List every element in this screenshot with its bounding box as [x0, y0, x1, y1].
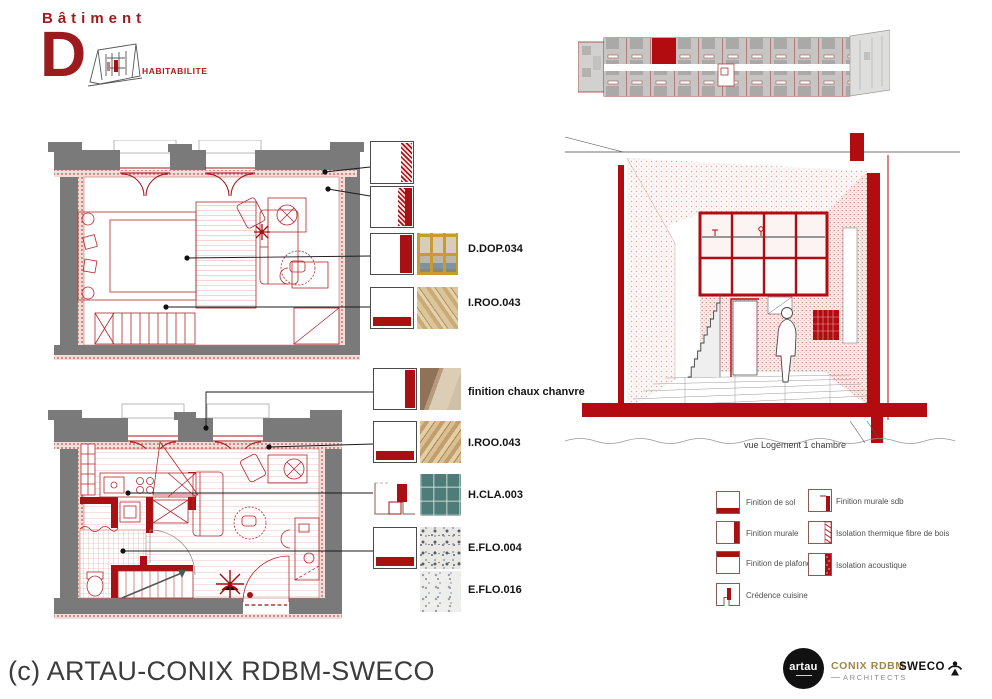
plant-symbol [216, 570, 244, 598]
key-plan [578, 28, 890, 106]
material-label: D.DOP.034 [468, 243, 523, 255]
legend-icon-floor-finish [716, 491, 740, 514]
legend-icon-kitchen-splashback [716, 583, 740, 606]
conix-logo-line1: CONIX RDBM [831, 661, 907, 673]
photo-chaux-chanvre [420, 368, 461, 410]
swatch-dop-034 [370, 233, 414, 275]
swatch-wall-insulation-finish [370, 186, 414, 228]
legend-icon-acoustic-insulation [808, 553, 832, 576]
material-label: I.ROO.043 [468, 297, 521, 309]
legend-label: Isolation thermique fibre de bois [836, 529, 949, 538]
photo-roo-043-b [420, 421, 461, 463]
material-label: E.FLO.016 [468, 584, 522, 596]
legend-icon-wall-finish [716, 521, 740, 544]
legend-label: Crédence cuisine [746, 591, 808, 600]
legend-icon-wood-fibre-insulation [808, 521, 832, 544]
swatch-flo-004 [373, 527, 417, 569]
building-sketch-icon [86, 36, 144, 90]
photo-flo-004 [420, 527, 461, 569]
door [733, 301, 757, 375]
swatch-roo-043-b [373, 421, 417, 463]
artau-logo: artau [783, 648, 824, 689]
conix-logo: CONIX RDBM ARCHITECTS [831, 661, 907, 682]
sweco-person-icon [948, 661, 962, 677]
page-subtitle: HABITABILITE [142, 66, 208, 76]
legend-label: Finition murale [746, 529, 798, 538]
legend-label: Finition de sol [746, 498, 795, 507]
material-label: E.FLO.004 [468, 542, 522, 554]
material-label: H.CLA.003 [468, 489, 523, 501]
floor-plan-living [48, 398, 380, 643]
swatch-roo-043-a [370, 287, 414, 329]
legend-label: Finition de plafond [746, 559, 811, 568]
photo-dop-034 [417, 233, 458, 275]
swatch-chaux-chanvre [373, 368, 417, 410]
swatch-exterior-insulation [370, 141, 414, 184]
conix-logo-line2: ARCHITECTS [831, 674, 907, 682]
presentation-slide: Bâtiment D HABITABILITE [0, 0, 992, 699]
photo-cla-003 [420, 474, 461, 516]
legend-icon-ceiling-finish [716, 551, 740, 574]
photo-flo-016 [420, 571, 461, 612]
legend-label: Isolation acoustique [836, 561, 907, 570]
legend-label: Finition murale sdb [836, 497, 904, 506]
perspective-caption: vue Logement 1 chambre [744, 440, 846, 450]
swatch-cla-003 [373, 474, 417, 516]
photo-roo-043-a [417, 287, 458, 329]
floor-plan-bedroom [48, 140, 364, 362]
artau-logo-text: artau [789, 661, 817, 673]
stairs [118, 570, 193, 598]
material-label: I.ROO.043 [468, 437, 521, 449]
interior-perspective [565, 125, 960, 465]
legend-icon-bathroom-wall-finish [808, 489, 832, 512]
plant-symbol [254, 224, 270, 240]
kitchen-tiles [813, 310, 839, 340]
sweco-logo: SWECO [899, 661, 962, 677]
building-letter: D [40, 22, 86, 86]
copyright-text: (c) ARTAU-CONIX RDBM-SWECO [8, 656, 435, 687]
sweco-logo-text: SWECO [899, 661, 945, 673]
